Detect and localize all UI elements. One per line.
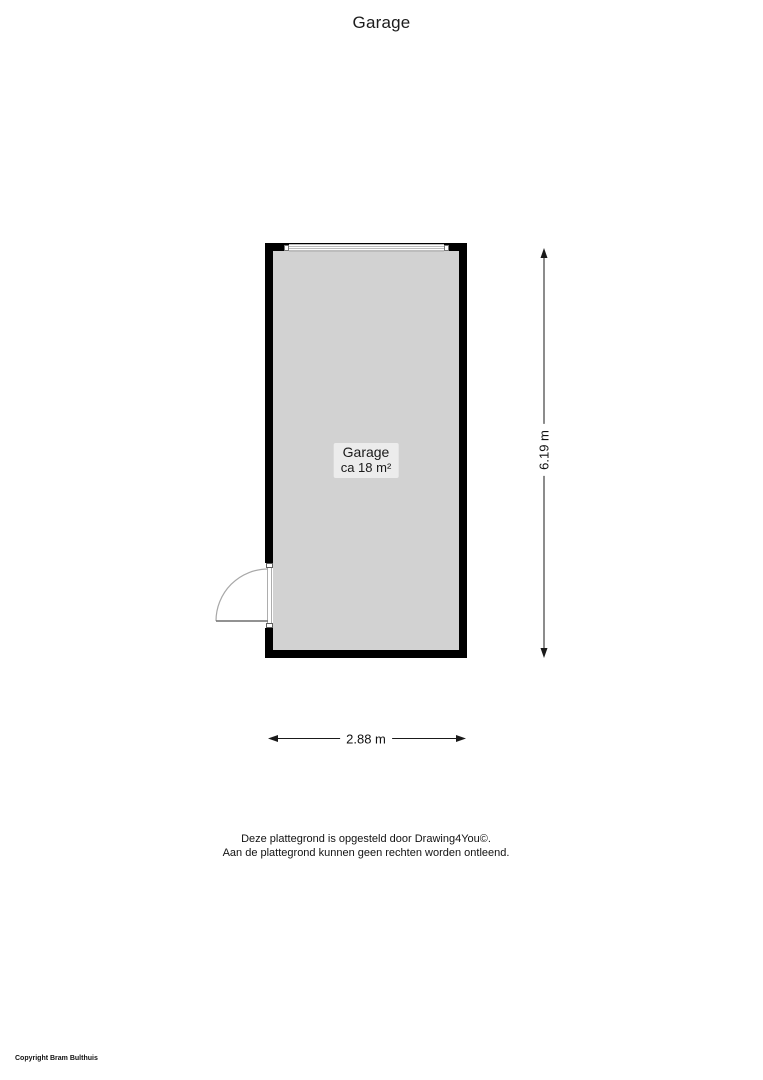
arrow-left-icon xyxy=(268,735,278,742)
page-title: Garage xyxy=(0,13,763,33)
door-swing-icon xyxy=(210,563,270,628)
room-name: Garage xyxy=(341,445,392,460)
room-label: Garage ca 18 m² xyxy=(334,443,399,478)
disclaimer: Deze plattegrond is opgesteld door Drawi… xyxy=(0,833,732,860)
arrow-down-icon xyxy=(541,648,548,658)
arrow-up-icon xyxy=(541,248,548,258)
room-area: ca 18 m² xyxy=(341,460,392,475)
garage-door xyxy=(284,244,449,252)
disclaimer-line-2: Aan de plattegrond kunnen geen rechten w… xyxy=(0,847,732,861)
arrow-right-icon xyxy=(456,735,466,742)
disclaimer-line-1: Deze plattegrond is opgesteld door Drawi… xyxy=(0,833,732,847)
copyright-notice: Copyright Bram Bulthuis xyxy=(15,1055,98,1062)
width-dimension-label: 2.88 m xyxy=(340,732,392,747)
door-swing-arc xyxy=(216,569,268,621)
garage-door-panel xyxy=(289,244,444,252)
garage-door-jamb-right xyxy=(444,245,449,251)
height-dimension-label: 6.19 m xyxy=(537,424,552,476)
